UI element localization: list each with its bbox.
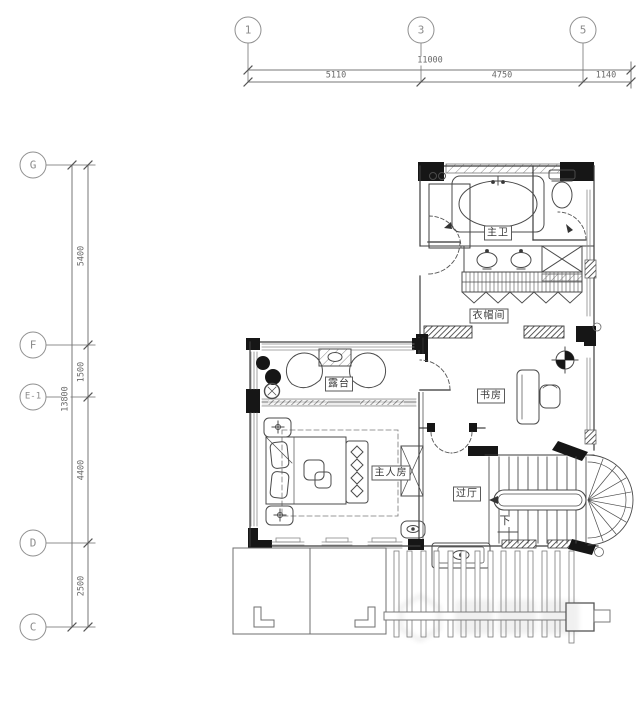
nightstand-bottom xyxy=(266,506,293,525)
stair-railing xyxy=(494,490,586,510)
axis-bubble-E1: E-1 xyxy=(25,392,41,403)
winder-treads xyxy=(588,459,631,541)
dim-seg-1140: 1140 xyxy=(595,72,617,81)
dim-seg-2500: 2500 xyxy=(78,575,87,597)
dim-seg-4400: 4400 xyxy=(78,459,87,481)
bench-runner xyxy=(346,441,368,503)
floor-plan-drawing xyxy=(0,0,640,707)
terrace-chair-right xyxy=(350,353,386,388)
pillow xyxy=(270,441,290,469)
axis-bubble-C: C xyxy=(30,622,37,633)
terrace-chair-left xyxy=(286,353,322,388)
room-label-study: 书房 xyxy=(477,389,505,404)
axis-bubble-G: G xyxy=(30,160,37,171)
dim-seg-5110: 5110 xyxy=(325,72,347,81)
bed xyxy=(266,437,346,504)
plant xyxy=(256,356,270,370)
stairs xyxy=(489,455,633,545)
floor-plan-canvas: 1 3 5 G F E-1 D C 11000 5110 4750 1140 1… xyxy=(0,0,640,707)
pillow xyxy=(270,471,290,499)
axis-bubble-5: 5 xyxy=(580,25,587,36)
axis-bubble-1: 1 xyxy=(245,25,252,36)
bathtub xyxy=(459,181,537,227)
dim-seg-4750: 4750 xyxy=(491,72,513,81)
roof-mark xyxy=(355,607,375,627)
stairs-down-label: 下 xyxy=(500,515,511,527)
desk xyxy=(517,370,539,424)
terrace-furniture xyxy=(256,349,386,399)
column-target-symbol xyxy=(552,347,578,373)
axis-bubble-F: F xyxy=(30,340,37,351)
study-furniture xyxy=(517,370,560,424)
dim-total-horizontal: 11000 xyxy=(416,57,444,66)
lower-roof xyxy=(233,548,310,634)
wardrobe-hangers xyxy=(462,292,582,303)
axis-bubble-3: 3 xyxy=(418,25,425,36)
nightstand-top xyxy=(264,418,291,437)
dim-seg-1500: 1500 xyxy=(78,361,87,383)
room-label-master-bedroom: 主人房 xyxy=(372,466,411,481)
room-label-cloakroom: 衣帽间 xyxy=(470,309,509,324)
dim-total-vertical: 13800 xyxy=(62,385,71,413)
room-label-hall: 过厅 xyxy=(453,487,481,502)
top-dim-ticks xyxy=(244,66,635,86)
direction-arrow xyxy=(489,496,498,504)
vanity-double-sink xyxy=(464,246,542,272)
roof-mark xyxy=(254,607,274,627)
wall-fixture xyxy=(401,521,425,538)
room-label-terrace: 露台 xyxy=(325,377,353,392)
ottoman xyxy=(304,460,324,480)
dim-seg-5400: 5400 xyxy=(78,245,87,267)
room-label-master-bath: 主卫 xyxy=(484,226,512,241)
axis-bubble-D: D xyxy=(30,538,37,549)
plant xyxy=(265,369,281,385)
